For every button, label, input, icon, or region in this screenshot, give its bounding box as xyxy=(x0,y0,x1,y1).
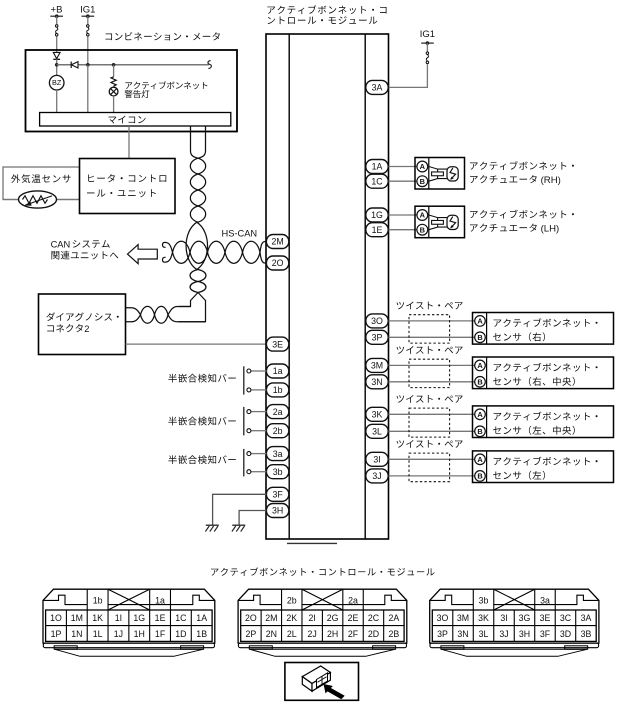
svg-text:IG1: IG1 xyxy=(420,29,435,40)
svg-text:(RH): (RH) xyxy=(541,175,561,186)
svg-text:2P: 2P xyxy=(246,629,257,639)
svg-text:2D: 2D xyxy=(368,629,379,639)
svg-text:1D: 1D xyxy=(175,629,186,639)
svg-text:(LH): (LH) xyxy=(541,223,560,234)
svg-text:1K: 1K xyxy=(92,613,103,623)
svg-text:3M: 3M xyxy=(457,613,469,623)
svg-text:3E: 3E xyxy=(540,613,551,623)
svg-text:2H: 2H xyxy=(327,629,338,639)
svg-text:3P: 3P xyxy=(372,333,383,343)
svg-text:2K: 2K xyxy=(286,613,297,623)
svg-text:3C: 3C xyxy=(560,613,572,623)
svg-text:CAN: CAN xyxy=(51,239,71,249)
svg-text:3G: 3G xyxy=(519,613,531,623)
svg-text:1E: 1E xyxy=(155,613,166,623)
svg-text:B: B xyxy=(477,472,482,481)
svg-text:3a: 3a xyxy=(540,595,550,605)
svg-text:2a: 2a xyxy=(348,595,358,605)
svg-text:3A: 3A xyxy=(372,83,383,93)
svg-text:B: B xyxy=(420,225,425,234)
svg-text:3L: 3L xyxy=(372,427,382,437)
svg-text:1a: 1a xyxy=(155,595,165,605)
svg-text:2b: 2b xyxy=(273,426,283,436)
svg-text:2: 2 xyxy=(84,324,89,334)
svg-text:2L: 2L xyxy=(287,629,297,639)
svg-text:3I: 3I xyxy=(500,613,507,623)
svg-text:B: B xyxy=(477,377,482,386)
svg-text:1C: 1C xyxy=(175,613,187,623)
svg-text:3P: 3P xyxy=(437,629,448,639)
svg-text:3J: 3J xyxy=(499,629,508,639)
svg-text:1E: 1E xyxy=(372,225,383,235)
svg-text:2O: 2O xyxy=(272,258,284,268)
svg-text:2O: 2O xyxy=(245,613,257,623)
svg-text:1G: 1G xyxy=(371,210,383,220)
svg-text:3K: 3K xyxy=(478,613,489,623)
svg-text:2E: 2E xyxy=(348,613,359,623)
svg-text:2N: 2N xyxy=(266,629,277,639)
svg-text:2C: 2C xyxy=(368,613,380,623)
svg-text:3I: 3I xyxy=(373,455,380,465)
svg-text:IG1: IG1 xyxy=(80,5,95,16)
svg-text:+B: +B xyxy=(51,5,63,16)
svg-text:1N: 1N xyxy=(71,629,82,639)
svg-text:3F: 3F xyxy=(540,629,551,639)
svg-text:2I: 2I xyxy=(309,613,316,623)
svg-text:1P: 1P xyxy=(51,629,62,639)
svg-text:3H: 3H xyxy=(519,629,530,639)
svg-text:B: B xyxy=(477,427,482,436)
svg-text:B: B xyxy=(420,177,425,186)
svg-text:3J: 3J xyxy=(372,471,381,481)
svg-text:3D: 3D xyxy=(560,629,571,639)
svg-text:1A: 1A xyxy=(196,613,207,623)
svg-text:A: A xyxy=(420,162,426,171)
svg-text:3E: 3E xyxy=(272,339,283,349)
svg-text:2J: 2J xyxy=(308,629,317,639)
svg-text:A: A xyxy=(477,410,483,419)
svg-text:2b: 2b xyxy=(287,595,297,605)
svg-text:A: A xyxy=(477,317,483,326)
svg-text:1C: 1C xyxy=(371,176,383,186)
svg-text:A: A xyxy=(477,455,483,464)
svg-text:1G: 1G xyxy=(133,613,145,623)
svg-text:2F: 2F xyxy=(348,629,359,639)
svg-text:1I: 1I xyxy=(115,613,122,623)
svg-text:1M: 1M xyxy=(71,613,83,623)
svg-text:2B: 2B xyxy=(389,629,400,639)
svg-text:1b: 1b xyxy=(93,595,103,605)
svg-text:1O: 1O xyxy=(50,613,62,623)
svg-text:3N: 3N xyxy=(457,629,468,639)
svg-text:3M: 3M xyxy=(371,361,383,371)
svg-text:1B: 1B xyxy=(196,629,207,639)
svg-text:3H: 3H xyxy=(272,506,283,516)
svg-text:2a: 2a xyxy=(273,407,283,417)
svg-text:1J: 1J xyxy=(114,629,123,639)
svg-text:3N: 3N xyxy=(371,377,382,387)
svg-text:3K: 3K xyxy=(372,410,383,420)
svg-text:3A: 3A xyxy=(581,613,592,623)
svg-text:1b: 1b xyxy=(273,385,283,395)
svg-text:1a: 1a xyxy=(273,366,283,376)
svg-text:3O: 3O xyxy=(437,613,449,623)
svg-text:A: A xyxy=(420,211,426,220)
svg-text:1F: 1F xyxy=(155,629,166,639)
svg-text:HS-CAN: HS-CAN xyxy=(222,228,258,238)
svg-text:BZ: BZ xyxy=(52,78,62,87)
svg-text:A: A xyxy=(477,361,483,370)
svg-text:1A: 1A xyxy=(372,162,383,172)
svg-text:2A: 2A xyxy=(389,613,400,623)
svg-text:2M: 2M xyxy=(271,237,283,247)
svg-text:3F: 3F xyxy=(272,490,283,500)
svg-text:3B: 3B xyxy=(581,629,592,639)
svg-text:3a: 3a xyxy=(273,449,283,459)
svg-text:3b: 3b xyxy=(273,467,283,477)
svg-text:2M: 2M xyxy=(265,613,277,623)
svg-text:3O: 3O xyxy=(371,316,383,326)
svg-text:B: B xyxy=(477,333,482,342)
svg-text:3L: 3L xyxy=(479,629,489,639)
svg-text:1L: 1L xyxy=(93,629,103,639)
svg-text:3b: 3b xyxy=(479,595,489,605)
svg-text:1H: 1H xyxy=(134,629,145,639)
svg-text:2G: 2G xyxy=(327,613,339,623)
